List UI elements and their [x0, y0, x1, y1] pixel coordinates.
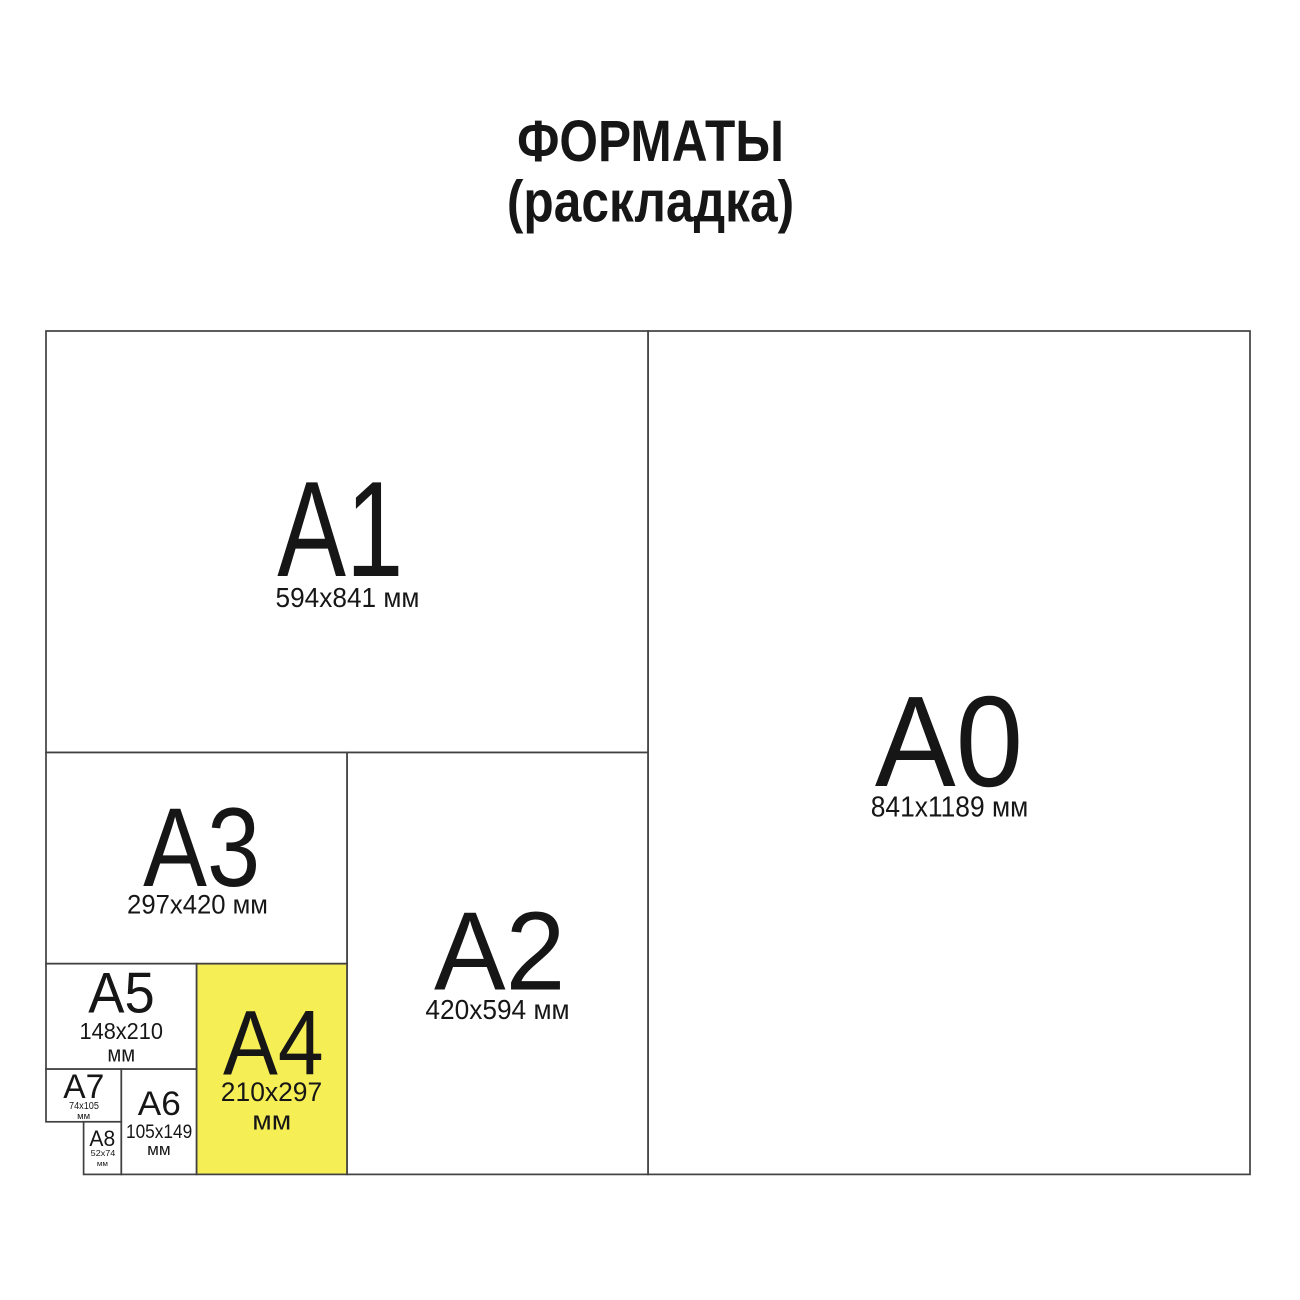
svg-text:мм: мм [77, 1111, 90, 1121]
svg-text:мм: мм [97, 1159, 108, 1168]
svg-text:мм: мм [147, 1140, 171, 1159]
svg-text:ФОРМАТЫ: ФОРМАТЫ [517, 108, 784, 174]
svg-text:(раскладка): (раскладка) [507, 169, 794, 235]
svg-text:A8: A8 [89, 1125, 115, 1151]
svg-text:52x74: 52x74 [91, 1148, 116, 1158]
svg-text:148x210: 148x210 [80, 1018, 163, 1044]
svg-text:297x420 мм: 297x420 мм [127, 889, 268, 920]
svg-text:A6: A6 [138, 1084, 181, 1123]
svg-text:мм: мм [107, 1042, 135, 1067]
svg-text:594x841 мм: 594x841 мм [276, 581, 420, 613]
svg-text:A5: A5 [88, 960, 154, 1025]
svg-text:841x1189 мм: 841x1189 мм [871, 790, 1028, 822]
svg-text:105x149: 105x149 [126, 1120, 192, 1142]
svg-text:мм: мм [252, 1106, 291, 1136]
svg-text:210x297: 210x297 [221, 1077, 322, 1107]
svg-text:420x594 мм: 420x594 мм [425, 993, 569, 1025]
